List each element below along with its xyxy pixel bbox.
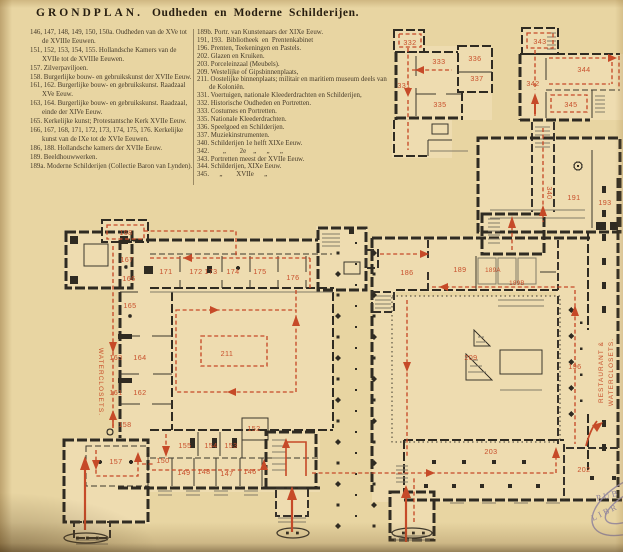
room-label-332: 332 <box>403 38 416 47</box>
room-label-186: 186 <box>400 268 413 277</box>
room-label-203: 203 <box>484 447 497 456</box>
room-label-167: 167 <box>120 255 133 264</box>
room-label-171: 171 <box>159 267 172 276</box>
stamp-text-line2: LIBR <box>589 501 620 523</box>
room-label-153: 153 <box>224 441 237 450</box>
room-label-164: 164 <box>133 353 146 362</box>
watercloset-west-label: WATERCLOSETS. <box>97 348 104 416</box>
room-label-176: 176 <box>286 273 299 282</box>
room-label-191: 191 <box>567 193 580 202</box>
room-label-157: 157 <box>109 457 122 466</box>
room-label-165: 165 <box>123 301 136 310</box>
room-label-152: 152 <box>247 424 260 433</box>
room-label-331: 331 <box>397 81 410 90</box>
room-label-189: 189 <box>453 265 466 274</box>
room-label-147: 147 <box>220 469 233 478</box>
room-label-162: 162 <box>133 388 146 397</box>
room-label-175: 175 <box>253 267 266 276</box>
scanned-guide-page: GRONDPLAN.Oudheden en Moderne Schilderij… <box>0 0 623 552</box>
room-label-155: 155 <box>178 441 191 450</box>
room-label-168: 168 <box>119 228 132 237</box>
room-label-146: 146 <box>243 467 256 476</box>
room-label-335: 335 <box>433 100 446 109</box>
room-label-202: 202 <box>577 465 590 474</box>
room-label-172: 172 <box>189 267 202 276</box>
room-label-333: 333 <box>432 57 445 66</box>
restaurant-label: RESTAURANT & <box>598 341 605 403</box>
room-label-343: 343 <box>533 37 546 46</box>
room-label-173: 173 <box>204 267 217 276</box>
room-label-209: 209 <box>464 353 477 362</box>
room-label-154: 154 <box>204 441 217 450</box>
room-label-150: 150 <box>156 456 169 465</box>
room-label-345: 345 <box>564 100 577 109</box>
room-label-163: 163 <box>109 353 122 362</box>
room-label-166: 166 <box>122 274 135 283</box>
room-label-189b: 189B <box>509 280 525 287</box>
room-label-148: 148 <box>197 467 210 476</box>
room-label-193: 193 <box>598 198 611 207</box>
room-label-189a: 189A <box>485 267 501 274</box>
watercloset-east-label: WATERCLOSETS. <box>608 338 615 406</box>
room-label-211: 211 <box>221 349 234 358</box>
room-label-174: 174 <box>226 267 239 276</box>
room-label-336: 336 <box>468 54 481 63</box>
room-label-340: 340 <box>545 186 554 199</box>
room-label-337: 337 <box>470 74 483 83</box>
room-label-161: 161 <box>109 388 122 397</box>
room-label-196: 196 <box>568 362 581 371</box>
room-label-158: 158 <box>118 420 131 429</box>
room-label-342: 342 <box>526 79 539 88</box>
room-label-149: 149 <box>177 468 190 477</box>
room-label-344: 344 <box>577 65 590 74</box>
floor-plan: 332 333 336 337 331 335 343 342 344 345 … <box>0 0 623 552</box>
